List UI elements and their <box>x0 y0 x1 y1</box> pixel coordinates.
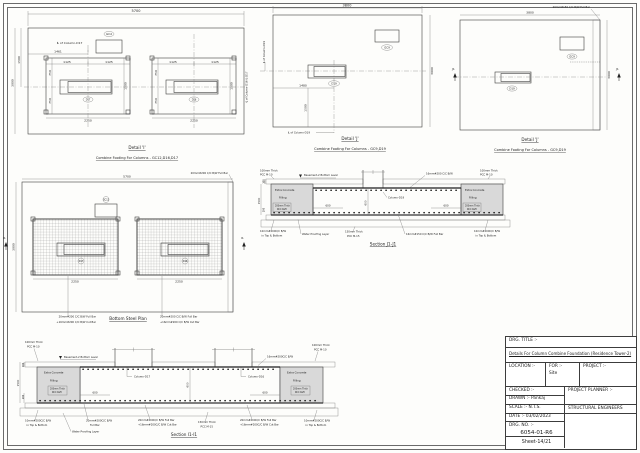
section-mark-i1-right: I1 <box>241 236 246 250</box>
column-d16-tag: D16 <box>192 99 197 102</box>
cl-of-column-d19-bottom: ℄ of Column-D19 <box>288 131 310 135</box>
checked-label: CHECKED :- <box>509 388 534 393</box>
drg-no-value: 6054-01-R6 <box>509 430 564 436</box>
dim-overall-height: 3000 <box>430 67 434 75</box>
raft-slab <box>313 188 461 215</box>
pcc-strip-bottom <box>25 403 335 408</box>
pcc-note-right-2: PCC M-10 <box>314 348 327 352</box>
drg-title-row: Details For Column Combine Foundation (R… <box>506 348 636 363</box>
detail-i-subtitle: Combine Footing For Columns - GC12,D16,D… <box>96 156 178 160</box>
centerline-label-d17: ℄ of Column-D17 1461 <box>28 41 88 54</box>
dim-overall-width: 5700 <box>123 175 131 179</box>
for-cell: FOR :-Site <box>546 363 580 386</box>
footing-d16-steel: D16 <box>135 217 224 275</box>
pcc-note-left-2: PCC M-10 <box>27 345 40 349</box>
panel-plan-j: 20mm#150 C/C B/W Full Bar 3800 3000 GC9 … <box>450 0 640 164</box>
rebar-top-note: 16mm#200C/C B/W <box>267 355 293 359</box>
bottom-note-right-2: in Top & Bottom <box>476 234 497 238</box>
location-row: LOCATION :- FOR :-Site PROJECT :- <box>506 363 636 387</box>
scale-value: N.T.S. <box>529 405 541 410</box>
dim-200: 200 <box>263 207 266 212</box>
rebar-note-full-right: 20mm#200 C/C B/W Full Bar <box>160 315 198 319</box>
footing-d16: 1125 1125 750 750 1500 2250 D16 <box>150 34 236 128</box>
filling-label-left: Filling <box>279 196 287 200</box>
raft-note-left-2: RCC Raft <box>52 391 62 394</box>
extra-concrete-label-right: Extra Concrete <box>465 188 485 192</box>
raft-note-right-2: RCC Raft <box>467 208 477 211</box>
rebar-note-cut-right: +16mm#200 C/C B/W Cut Bar <box>160 320 201 324</box>
filling-label-right: Filling <box>469 196 477 200</box>
dim-600-vert: 600 <box>186 382 190 387</box>
footing-d17-steel: D17 <box>31 217 120 275</box>
title-block: DRG. TITLE :- Details For Column Combine… <box>505 336 637 450</box>
column-d17-tag: D17 <box>86 99 91 102</box>
meta-left-column: CHECKED :- DRAWN :- Pankaj SCALE :- N.T.… <box>506 387 565 448</box>
raft-note-left-2: RCC Raft <box>277 208 287 211</box>
column-stub-d19 <box>361 170 385 188</box>
sheet-no-value: Sheet-14/21 <box>522 440 551 445</box>
extra-concrete-label-left: Extra Concrete <box>275 188 295 192</box>
section-mark-j1-right: J1 <box>615 67 621 81</box>
drg-title-label-text: DRG. TITLE :- <box>509 338 537 343</box>
dim-750: 750 <box>154 98 158 104</box>
for-label: FOR :- <box>549 364 562 369</box>
dim-2250: 2250 <box>175 280 183 284</box>
cl-of-column-d16-d17: ℄ of Column-D16 & D17 <box>245 71 249 102</box>
column-gc9-tag: GC9 <box>569 55 575 59</box>
pcc-note-left-1: 100mm Thick <box>25 340 43 344</box>
cut-bar-note-right-1: 20mm#200C/C B/W Full Bar <box>240 418 277 422</box>
dim-750: 750 <box>154 70 158 76</box>
panel-detail-i: 5700 3000 1500 GC12 ℄ of Column-D17 1461… <box>0 0 250 164</box>
bottom-note-left-2: in Top & Bottom <box>262 234 283 238</box>
pcc-strip-top-2 <box>152 362 215 367</box>
dim-2250: 2250 <box>71 280 79 284</box>
dim-100: 100 <box>263 179 266 184</box>
bottom-steel-plan-title: Bottom Steel Plan <box>109 316 147 321</box>
pcc-note-right-2: PCC M-10 <box>480 173 493 177</box>
drg-no-label: DRG. NO. :- <box>509 423 534 428</box>
column-gc12-tag: GC12 <box>106 33 113 36</box>
column-d17-tag: D17 <box>79 260 84 263</box>
drawing-sheet: 5700 3000 1500 GC12 ℄ of Column-D17 1461… <box>0 0 640 453</box>
cut-bar-note-left-2: +16mm#200C/C B/W Cut Bar <box>138 423 178 427</box>
section-mark-label: J1 <box>615 67 619 71</box>
for-value: Site <box>549 372 579 377</box>
section-j1-title: Section J1-J1 <box>370 242 397 247</box>
dim-1500: 1500 <box>257 197 261 204</box>
dim-overall-width: 3800 <box>343 4 352 8</box>
cl-of-column-d17: ℄ of Column-D17 <box>57 41 83 45</box>
pcc-note-left-2: PCC M-10 <box>260 173 273 177</box>
pcc-strip-bottom <box>266 215 505 220</box>
bottom-note-right-1: 10mm#200C/C B/W <box>474 229 500 233</box>
rebar-top-note: 16mm#200 C/C B/W <box>426 172 453 176</box>
date-cell: DATE :- 03/02/2023 <box>506 414 564 423</box>
pcc-strip-top-1 <box>25 362 115 367</box>
dim-1125: 1125 <box>211 60 219 64</box>
column-d19: D19 <box>495 72 531 91</box>
extra-concrete-label-right: Extra Concrete <box>287 371 307 375</box>
bottom-note-left-1: 10mm#200C/C B/W <box>25 419 51 423</box>
extra-concrete-label-left: Extra Concrete <box>44 371 64 375</box>
basement-level-label: Basement-2 Bottom Level <box>64 355 98 359</box>
detail-i-title: Detail 'I' <box>128 145 145 150</box>
drg-title-text: Details For Column Combine Foundation (R… <box>509 351 631 356</box>
location-cell: LOCATION :- <box>506 363 546 386</box>
pcc-bottom-note-1: 150mm Thick <box>345 230 363 234</box>
meta-rows: CHECKED :- DRAWN :- Pankaj SCALE :- N.T.… <box>506 387 636 448</box>
dim-1500: 1500 <box>16 379 20 386</box>
project-cell: PROJECT :- <box>580 363 636 386</box>
bottom-note-left-1: 10mm#200C/C B/W <box>260 229 286 233</box>
pcc-bottom-note-2: PCC M-15 <box>347 234 360 238</box>
drg-title-label: DRG. TITLE :- <box>506 337 636 348</box>
scale-cell: SCALE :- N.T.S. <box>506 405 564 414</box>
planner-cell: PROJECT PLANNER :- <box>565 387 636 405</box>
dim-600-vert: 600 <box>364 200 368 205</box>
pcc-bottom-note-2: PCC M-15 <box>201 425 214 429</box>
meta-right-column: PROJECT PLANNER :- STRUCTURAL ENGINEERS <box>565 387 636 448</box>
section-mark-i1-left: I1 <box>3 236 8 250</box>
dim-1125: 1125 <box>63 60 71 64</box>
date-label: DATE :- <box>509 414 525 419</box>
basement-level-marker: Basement-2 Bottom Level <box>299 173 338 178</box>
engineers-label: STRUCTURAL ENGINEERS <box>568 406 623 411</box>
pcc-note-right-1: 100mm Thick <box>480 169 498 173</box>
filling-label-right: Filling <box>293 379 301 383</box>
filling-label-left: Filling <box>50 379 58 383</box>
cl-of-column-d19-left: ℄ of Column-D19 <box>262 41 266 63</box>
waterproofing-label: Water Proofing Layer <box>302 232 330 236</box>
section-mark-label: I1 <box>241 236 244 240</box>
bottom-note-right-1: 10mm#200C/C B/W <box>304 419 330 423</box>
engineers-cell: STRUCTURAL ENGINEERS <box>565 405 636 414</box>
column-gc12: GC12 <box>96 31 122 53</box>
soil-strip <box>20 408 338 416</box>
bottom-note-right-2: in Top & Bottom <box>306 423 327 427</box>
column-stub-d17 <box>112 348 155 368</box>
cut-bar-note-right-2: +16mm#200C/C B/W Cut Bar <box>240 423 280 427</box>
panel-bottom-steel-plan: 20mm#200 C/C B/W Full Bar 5700 3000 GC12… <box>0 168 260 333</box>
pcc-strip-top-3 <box>252 362 335 367</box>
column-gc9: GC9 <box>375 30 399 50</box>
pcc-strip-top-right <box>383 179 505 184</box>
full-bar-note-1: 20mm#200C/C B/W <box>86 419 112 423</box>
rebar-note-top: 20mm#200 C/C B/W Full Bar <box>191 171 229 175</box>
pcc-note-right-1: 100mm Thick <box>312 343 330 347</box>
raft-note-right-2: RCC Raft <box>295 391 305 394</box>
section-mark-j1-left: J1 <box>451 67 457 81</box>
dim-overall-height: 3000 <box>11 79 15 87</box>
dim-1500: 1500 <box>124 82 128 90</box>
drg-no-cell: DRG. NO. :-6054-01-R6 <box>506 422 564 437</box>
dim-overall-height: 3000 <box>12 243 16 251</box>
dim-1125: 1125 <box>169 60 177 64</box>
pcc-note-left-1: 100mm Thick <box>260 169 278 173</box>
section-mark-label: J1 <box>451 67 455 71</box>
dim-600-left: 600 <box>326 204 331 208</box>
column-gc12-tag: GC12 <box>103 199 110 202</box>
rebar-note-full-left: 20mm#200 C/C B/W Full Bar <box>59 315 97 319</box>
dim-600-right: 600 <box>263 391 268 395</box>
project-label: PROJECT :- <box>583 364 606 369</box>
detail-j-title: Detail 'J' <box>341 136 358 141</box>
dim-600-right: 600 <box>444 204 449 208</box>
edge-hatch-strip <box>593 20 600 130</box>
dim-1125: 1125 <box>105 60 113 64</box>
dim-200: 200 <box>22 394 25 399</box>
column-gc9-tag: GC9 <box>384 46 390 50</box>
column-d19-label: Column-D19 <box>388 196 405 200</box>
dim-overall-height: 3000 <box>607 71 611 79</box>
blank-cell <box>565 414 636 448</box>
dim-overall-width: 3800 <box>526 11 534 15</box>
panel-section-j1: 1500 100 200 100mm Thick PCC M-10 Baseme… <box>258 168 513 263</box>
dim-100: 100 <box>22 362 25 367</box>
drawn-label: DRAWN :- <box>509 396 530 401</box>
section-i1-title: Section I1-I1 <box>171 432 198 437</box>
basement-level-marker: Basement-2 Bottom Level <box>59 355 98 359</box>
pcc-bottom-note-1: 150mm Thick <box>198 420 216 424</box>
panel-detail-j: 3800 3000 GC9 D19 ℄ of Column-D19 1480 1… <box>250 0 450 164</box>
column-d19: D19 <box>308 65 346 86</box>
dim-1480: 1480 <box>299 84 307 88</box>
location-label: LOCATION :- <box>509 364 535 369</box>
column-d19-tag: D19 <box>509 87 515 91</box>
footing-d17: 1125 1125 750 750 1500 2250 D17 <box>44 50 130 128</box>
dim-1500: 1500 <box>230 82 234 90</box>
waterproofing-label: Water Proofing Layer <box>72 430 100 434</box>
dim-750: 750 <box>48 70 52 76</box>
checked-cell: CHECKED :- <box>506 387 564 396</box>
column-stub-d16 <box>212 348 255 368</box>
drawn-cell: DRAWN :- Pankaj <box>506 396 564 405</box>
column-d16-tag: D16 <box>183 260 188 263</box>
dim-750: 750 <box>48 98 52 104</box>
sheet-no-cell: Sheet-14/21 <box>506 437 564 448</box>
plan-j-subtitle: Combine Footing For Columns - GC9,D19 <box>494 148 566 152</box>
basement-level-label: Basement-2 Bottom Level <box>304 173 338 177</box>
panel-section-i1: 100mm Thick PCC M-10 Basement-2 Bottom L… <box>0 333 345 453</box>
drawn-value: Pankaj <box>531 396 545 401</box>
scale-label: SCALE :- <box>509 405 527 410</box>
dim-1461: 1461 <box>54 50 62 54</box>
section-mark-label: I1 <box>3 236 6 240</box>
raft-slab <box>80 367 280 403</box>
pcc-strip-top-left <box>266 179 363 184</box>
column-d16-label: Column-D16 <box>248 375 265 379</box>
rebar-note-cut-left: +16mm#200 C/C B/W Cut Bar <box>56 320 97 324</box>
bottom-note-left-2: in Top & Bottom <box>27 423 48 427</box>
planner-label: PROJECT PLANNER :- <box>568 388 612 393</box>
dim-top-offset: 1500 <box>17 56 21 64</box>
full-bar-note-2: Full Bar <box>90 423 101 427</box>
rebar-bottom-note: 16mm#150 C/C B/W Full Bar <box>406 232 444 236</box>
dim-overall-width: 5700 <box>132 9 141 13</box>
column-d19-tag: D19 <box>331 82 337 86</box>
column-d17-label: Column-D17 <box>134 375 151 379</box>
column-gc12: GC12 <box>95 197 117 218</box>
detail-j-subtitle: Combine Footing For Columns - GC9,D19 <box>314 147 386 151</box>
column-gc9: GC9 <box>560 37 584 59</box>
dim-600-left: 600 <box>93 391 98 395</box>
edge-hatch-strip <box>228 182 233 312</box>
cut-bar-note-left-1: 20mm#200C/C B/W Full Bar <box>138 418 175 422</box>
rebar-note: 20mm#150 C/C B/W Full Bar <box>553 5 591 9</box>
date-value: 03/02/2023 <box>526 414 551 419</box>
plan-j-title: Detail 'J' <box>521 137 538 142</box>
dim-1500: 1500 <box>304 104 308 112</box>
